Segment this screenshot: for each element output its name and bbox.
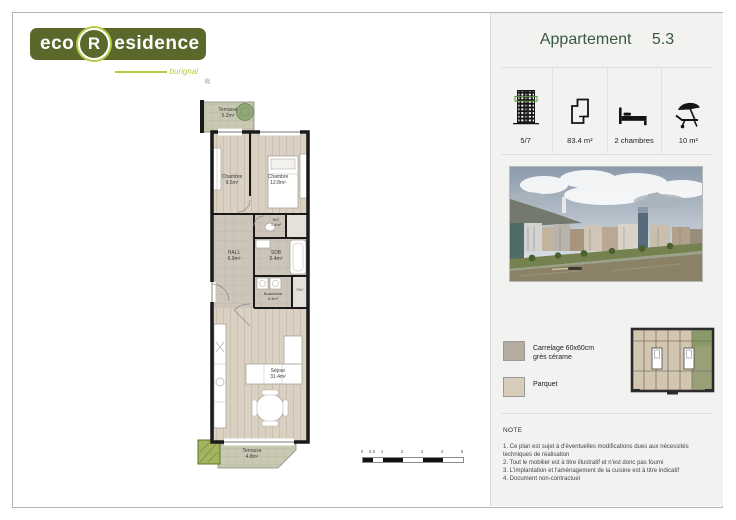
stat-bedrooms: 2 chambres [608, 69, 662, 153]
apartment-number: 5.3 [652, 31, 674, 48]
riverside-photo-graphic [510, 167, 702, 281]
divider [501, 154, 713, 155]
stat-floor-label: 5/7 [520, 136, 530, 145]
logo-registered-mark: ® [205, 79, 210, 86]
logo-subtitle: burignal [115, 67, 198, 76]
key-plan-thumbnail [629, 319, 717, 405]
carrelage-swatch [503, 341, 525, 361]
info-panel: Appartement 5.3 5/7 [490, 13, 723, 506]
eco-residence-logo: eco R esidence burignal ® [30, 28, 206, 80]
logo-subtitle-text: burignal [170, 67, 198, 76]
logo-underline [115, 71, 167, 73]
carrelage-label: Carrelage 60x60cm grès cérame [533, 341, 594, 362]
stat-bedrooms-label: 2 chambres [615, 136, 654, 145]
logo-r-circle-icon: R [76, 26, 112, 62]
key-plan-graphic [629, 319, 717, 405]
divider [501, 413, 713, 414]
logo-r-letter: R [78, 28, 110, 60]
room-label-terrasse-bottom: Terrasse4.8m² [242, 448, 261, 460]
note-item: 3. L'implantation et l'aménagement de la… [503, 467, 707, 475]
room-label-buanderie: Buanderie5.4m² [264, 291, 282, 301]
logo-text-esidence: esidence [114, 33, 199, 55]
scale-tick-label: 0.5 [369, 449, 375, 454]
room-label-wc: WC1.4m² [271, 217, 281, 227]
stats-row: 5/7 83.4 m² 2 chambres [499, 69, 715, 153]
legend-item-carrelage: Carrelage 60x60cm grès cérame [503, 341, 594, 362]
floorplan-icon [567, 95, 593, 129]
scale-tick-label: 2 [401, 449, 404, 454]
scale-tick-label: 3 [421, 449, 424, 454]
note-item: 2. Tout le mobilier est à titre illustra… [503, 459, 707, 467]
floor-plan-drawing [188, 96, 322, 476]
building-icon [513, 89, 539, 129]
logo-pill: eco R esidence [30, 28, 206, 60]
note-section: NOTE 1. Ce plan est sujet à d'éventuelle… [503, 427, 707, 483]
plan-sheet: eco R esidence burignal ® [0, 0, 736, 520]
divider [501, 67, 713, 68]
legend-item-parquet: Parquet [503, 377, 594, 397]
room-label-pac: PAC [297, 288, 304, 292]
scale-tick-label: 1 [381, 449, 384, 454]
stat-terrace: 10 m² [662, 69, 715, 153]
scale-bar-segments [362, 457, 464, 463]
bed-icon [618, 103, 650, 129]
stat-floor: 5/7 [499, 69, 553, 153]
parasol-icon [672, 100, 704, 129]
note-items: 1. Ce plan est sujet à d'éventuelles mod… [503, 443, 707, 483]
note-title: NOTE [503, 427, 707, 434]
room-label-terrasse-top: Terrasse5.2m² [218, 107, 237, 119]
room-label-chambre-2: Chambre12.8m² [268, 174, 289, 186]
scale-tick-label: 0 [361, 449, 364, 454]
stat-terrace-label: 10 m² [679, 136, 698, 145]
apartment-title: Appartement [540, 31, 632, 48]
room-label-chambre-1: Chambre9.5m² [222, 174, 243, 186]
room-label-sejour: Séjour31.4m² [270, 368, 286, 380]
scale-tick-label: 4 [441, 449, 444, 454]
floor-legend: Carrelage 60x60cm grès cérame Parquet [503, 341, 594, 412]
parquet-label: Parquet [533, 377, 558, 389]
scale-bar: 0 0.5 1 2 3 4 5 [362, 449, 462, 467]
logo-text-eco: eco [40, 33, 74, 55]
residence-photo [509, 166, 703, 282]
note-item: 4. Document non-contractuel [503, 475, 707, 483]
page-title: Appartement 5.3 [491, 31, 723, 49]
stat-surface: 83.4 m² [553, 69, 607, 153]
scale-tick-label: 5 [461, 449, 464, 454]
floor-plan: Terrasse5.2m² Chambre9.5m² Chambre12.8m²… [188, 96, 322, 476]
room-label-hall: HALL6.9m² [228, 250, 241, 262]
note-item: 1. Ce plan est sujet à d'éventuelles mod… [503, 443, 707, 459]
stat-surface-label: 83.4 m² [567, 136, 592, 145]
parquet-swatch [503, 377, 525, 397]
room-label-sdb: SDB5.4m² [270, 250, 283, 262]
